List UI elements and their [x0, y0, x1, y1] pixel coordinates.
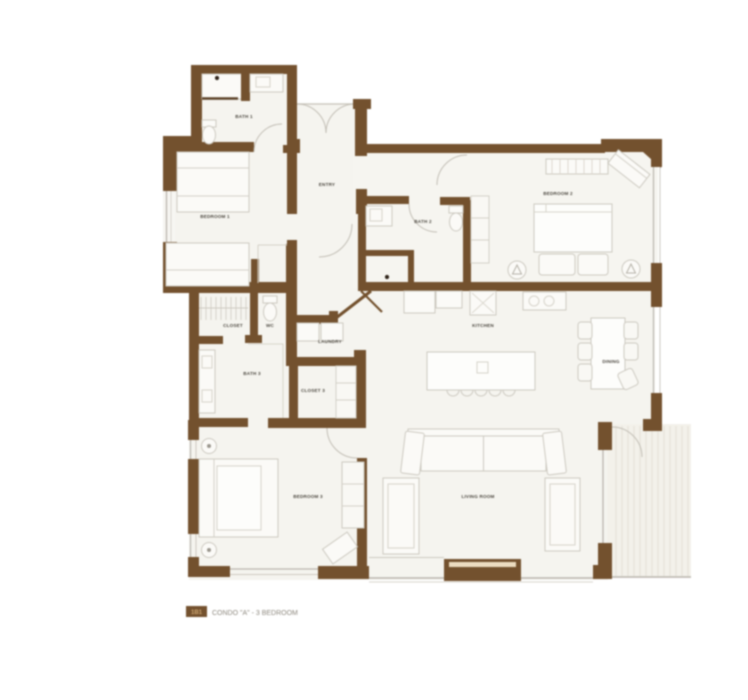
svg-text:LAUNDRY: LAUNDRY — [318, 339, 342, 344]
svg-text:LIVING ROOM: LIVING ROOM — [461, 494, 494, 499]
svg-text:BATH 2: BATH 2 — [414, 219, 432, 224]
svg-text:WC: WC — [266, 323, 275, 328]
svg-text:BEDROOM 3: BEDROOM 3 — [293, 494, 323, 499]
svg-text:CONDO "A" - 3 BEDROOM: CONDO "A" - 3 BEDROOM — [212, 610, 298, 617]
svg-text:BEDROOM 1: BEDROOM 1 — [200, 214, 230, 219]
svg-text:CLOSET: CLOSET — [223, 323, 243, 328]
svg-text:BEDROOM 2: BEDROOM 2 — [543, 191, 573, 196]
svg-text:KITCHEN: KITCHEN — [472, 323, 494, 328]
svg-text:BATH 3: BATH 3 — [243, 371, 261, 376]
svg-text:ENTRY: ENTRY — [319, 182, 335, 187]
svg-text:1B1: 1B1 — [191, 610, 203, 616]
svg-text:DINING: DINING — [602, 359, 620, 364]
svg-text:CLOSET 3: CLOSET 3 — [301, 388, 325, 393]
svg-text:BATH 1: BATH 1 — [235, 114, 253, 119]
